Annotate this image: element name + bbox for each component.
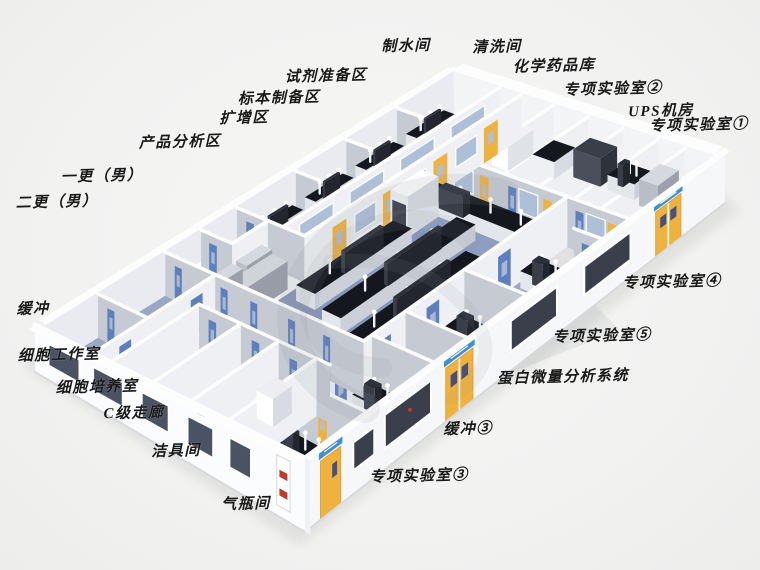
building-render — [0, 0, 760, 570]
lab-floorplan-figure: 制水间清洗间化学药品库专项实验室②UPS机房专项实验室①试剂准备区标本制备区扩增… — [0, 0, 760, 570]
